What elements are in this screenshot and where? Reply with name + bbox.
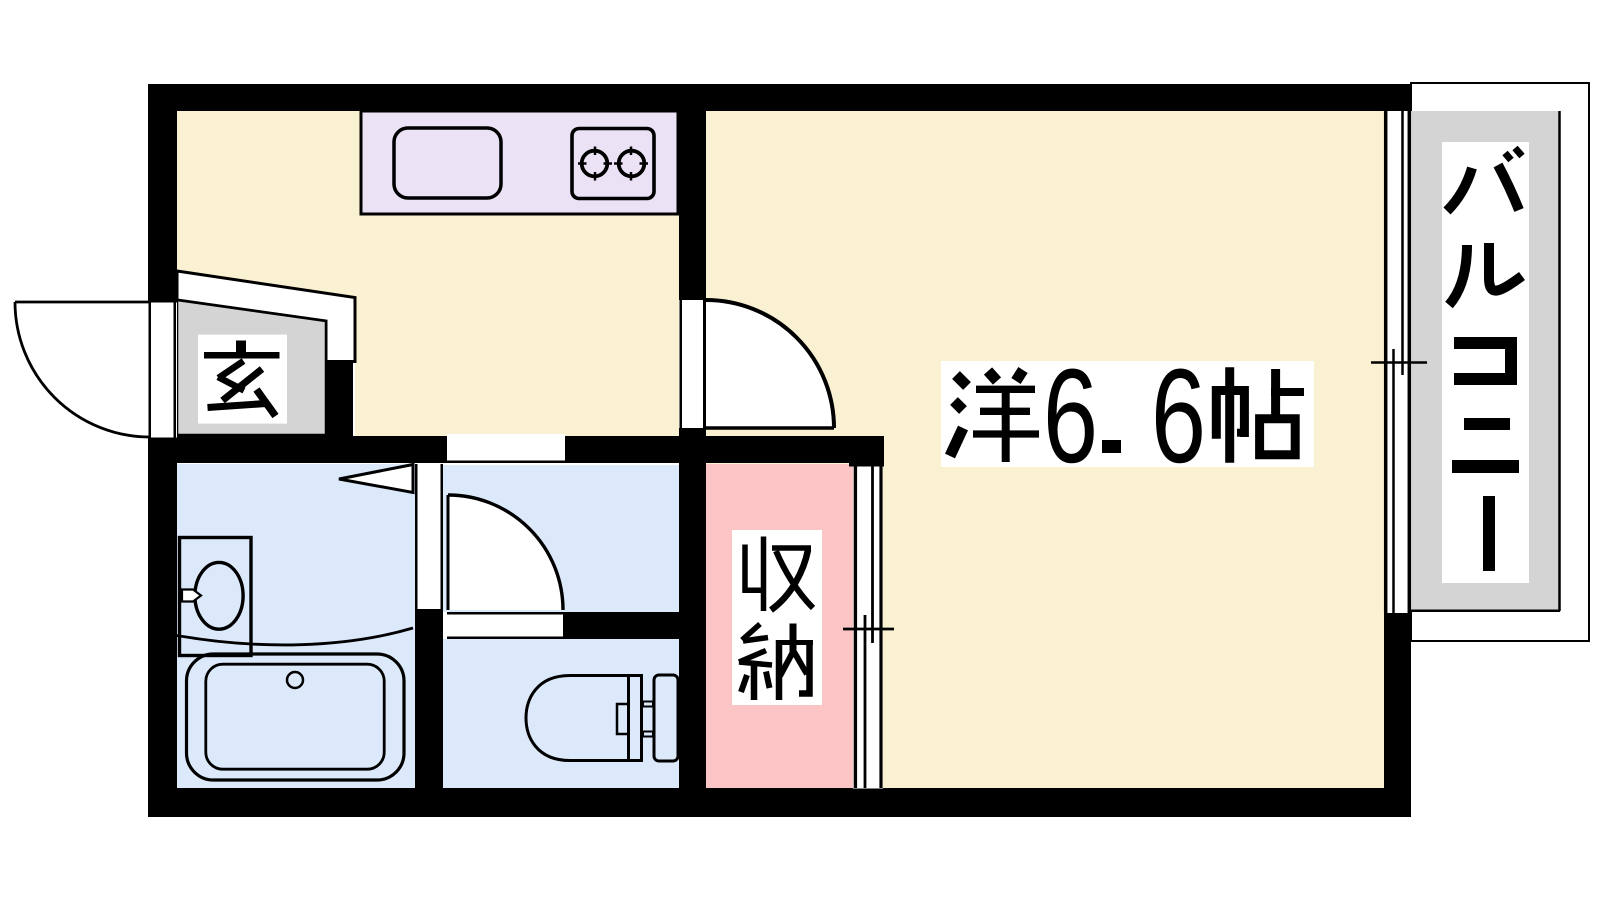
svg-text:6: 6 [1151, 340, 1206, 490]
svg-text:6: 6 [1043, 340, 1098, 490]
